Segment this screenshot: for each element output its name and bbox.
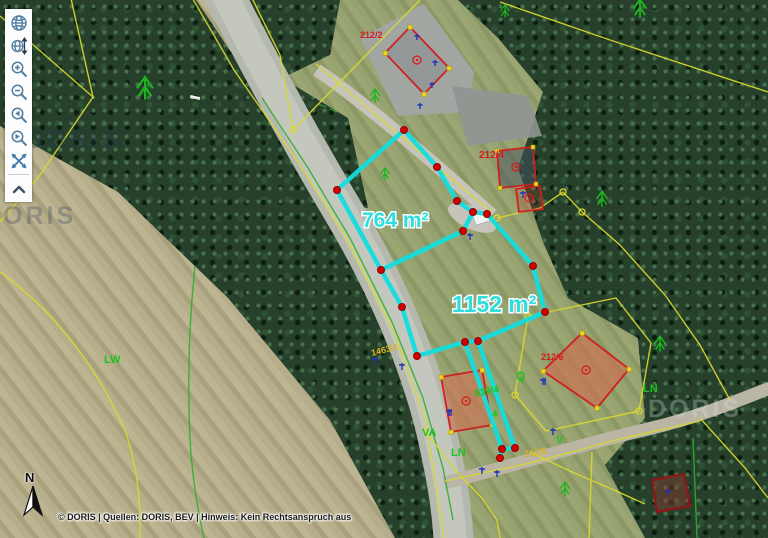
north-arrow-icon (16, 483, 52, 523)
north-arrow: N (16, 470, 52, 522)
map-toolbar (5, 9, 32, 202)
zoom-out-button[interactable] (6, 80, 31, 103)
pan-full-button[interactable] (6, 149, 31, 172)
next-view-button[interactable] (6, 126, 31, 149)
attribution-line-1: © DORIS | Quellen: DORIS, BEV | Hinweis:… (58, 512, 351, 524)
landuse-label-v: V (556, 434, 564, 446)
magnifier-back-arrow-icon (9, 105, 29, 125)
globe-with-arrows-icon (9, 36, 29, 56)
zoom-in-button[interactable] (6, 57, 31, 80)
toolbar-divider (8, 174, 29, 175)
magnifier-plus-icon (9, 59, 29, 79)
landuse-label-lw: LW (104, 354, 121, 366)
zoom-full-extent-button[interactable] (6, 34, 31, 57)
collapse-toolbar-button[interactable] (6, 177, 31, 200)
roads (190, 0, 768, 538)
attribution: © DORIS | Quellen: DORIS, BEV | Hinweis:… (58, 489, 351, 538)
overview-globe-button[interactable] (6, 11, 31, 34)
road-centerline-mark (190, 95, 200, 100)
chevron-up-icon (9, 179, 29, 199)
area-label-1152: 1152 m² (452, 291, 537, 317)
landuse-label-va: VA (422, 427, 437, 439)
parcel-label-4: 4 (492, 409, 498, 420)
map-canvas[interactable]: 764 m² 1152 m² 212/2 212/4 212/6 1463/1 … (0, 0, 768, 538)
landuse-label-ln-2: LN (643, 383, 658, 395)
parcel-label-212-6: 212/6 (541, 352, 564, 362)
previous-view-button[interactable] (6, 103, 31, 126)
landuse-label-q: Q (516, 369, 525, 383)
landuse-label-ln-1: LN (451, 447, 466, 459)
area-label-764: 764 m² (362, 209, 429, 232)
parcel-label-212-4: 212/4 (479, 150, 504, 161)
building-corner-shed (652, 474, 690, 512)
parcel-label-212-2: 212/2 (360, 30, 383, 40)
magnifier-minus-icon (9, 82, 29, 102)
map-overlay: 764 m² 1152 m² 212/2 212/4 212/6 1463/1 … (0, 0, 768, 538)
expand-arrows-icon (9, 151, 29, 171)
globe-icon (9, 13, 29, 33)
magnifier-forward-arrow-icon (9, 128, 29, 148)
